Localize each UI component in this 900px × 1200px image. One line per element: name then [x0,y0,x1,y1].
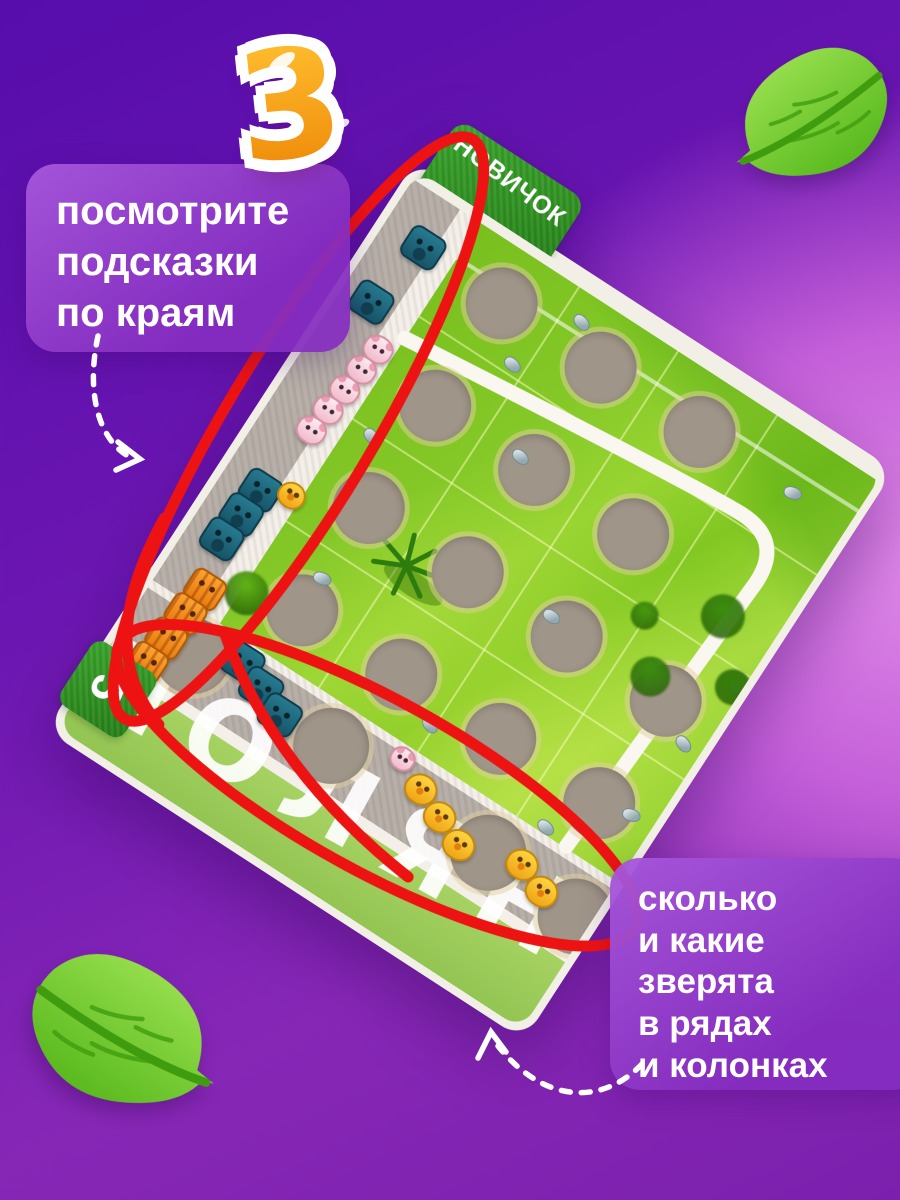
count-tab-label: 5 [78,667,138,712]
arrowhead [478,1032,506,1058]
step-number-fill: 3 [229,16,351,196]
arrowhead [116,442,140,470]
leaf-icon [10,932,232,1122]
step-number: 3 3 [229,10,407,206]
callout-right: сколько и какие зверята в рядах и колонк… [610,858,900,1090]
dashed-arrow-left [93,336,128,456]
leaf-icon [729,34,896,187]
promo-page: { "step_number": "3", "callouts": { "lef… [0,0,900,1200]
